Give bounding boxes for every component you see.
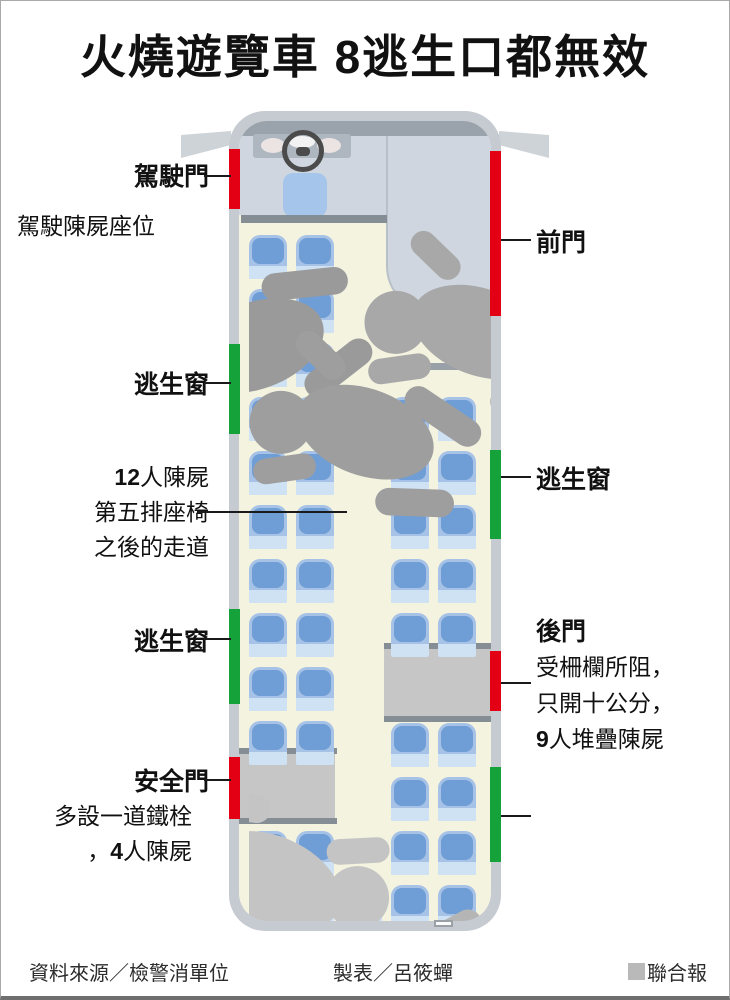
escape-window-left-1 xyxy=(229,344,240,434)
front-door-exit xyxy=(490,151,501,316)
escape-window-left-2 xyxy=(229,609,240,704)
escape-window-right-1 xyxy=(490,450,501,539)
rear-door-note: 受柵欄所阻， 只開十公分， 9人堆疊陳屍 xyxy=(536,649,674,757)
left-side-mirror xyxy=(181,131,231,158)
page-title: 火燒遊覽車 8逃生口都無效 xyxy=(1,21,729,87)
rear-victim-count: 9 xyxy=(536,726,549,752)
driver-door-exit xyxy=(229,149,240,209)
victim-bodies xyxy=(249,131,491,921)
safety-door-note: 多設一道鐵栓 ，4人陳屍 xyxy=(54,799,192,869)
safety-door-exit xyxy=(229,757,240,819)
driver-note-label: 駕駛陳屍座位 xyxy=(17,207,155,241)
source-credit: 資料來源／檢警消單位 xyxy=(29,957,229,986)
bus-body xyxy=(229,111,501,931)
front-door-label: 前門 xyxy=(536,223,586,259)
rear-door-label: 後門 xyxy=(536,612,586,648)
infographic-page: 火燒遊覽車 8逃生口都無效 xyxy=(0,0,730,1000)
brand-mark: 聯合報 xyxy=(628,957,707,986)
safety-victim-count: 4 xyxy=(110,838,123,864)
brand-square-icon xyxy=(628,963,645,980)
leader-line xyxy=(501,682,531,684)
leader-line xyxy=(501,476,531,478)
leader-line xyxy=(204,779,231,781)
bus-interior xyxy=(239,121,491,921)
leader-line xyxy=(501,815,531,817)
leader-line xyxy=(204,638,231,640)
aisle-victim-count: 12 xyxy=(114,464,140,490)
brand-name: 聯合報 xyxy=(647,957,707,986)
safety-door-label: 安全門 xyxy=(134,762,209,798)
escape-window-right-2 xyxy=(490,767,501,862)
rear-door-exit xyxy=(490,651,501,711)
steering-wheel-icon xyxy=(282,130,324,172)
chart-credit: 製表／呂筱蟬 xyxy=(333,957,453,986)
license-plate xyxy=(434,920,453,927)
leader-line xyxy=(204,175,231,177)
escape-window-left-2-label: 逃生窗 xyxy=(134,622,209,658)
escape-window-right-1-label: 逃生窗 xyxy=(536,460,611,496)
driver-door-label: 駕駛門 xyxy=(134,157,209,193)
leader-line xyxy=(204,382,231,384)
aisle-victims-label: 12人陳屍 第五排座椅 之後的走道 xyxy=(94,460,209,565)
right-side-mirror xyxy=(499,131,549,158)
footer: 資料來源／檢警消單位 製表／呂筱蟬 聯合報 xyxy=(1,953,729,985)
leader-line xyxy=(501,239,531,241)
escape-window-left-1-label: 逃生窗 xyxy=(134,365,209,401)
leader-line xyxy=(197,511,347,513)
